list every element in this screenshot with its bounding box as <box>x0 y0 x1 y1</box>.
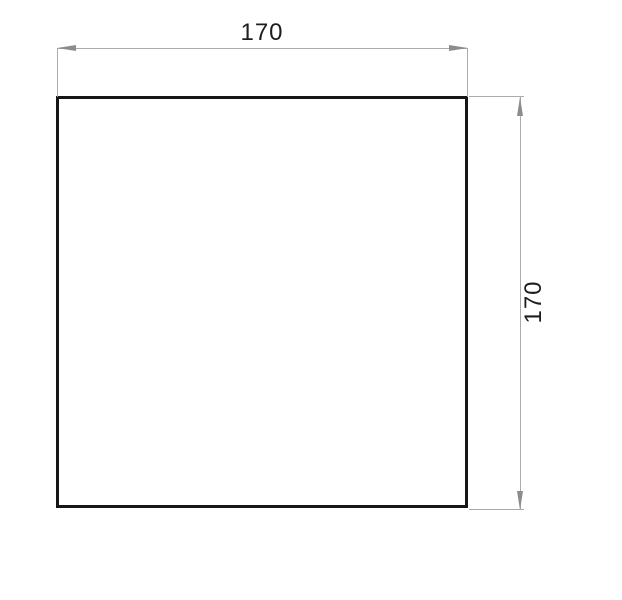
up-arrowhead-icon <box>517 97 523 116</box>
square-outline <box>56 96 468 508</box>
right-extension-line-bottom <box>469 509 524 510</box>
top-extension-line-right <box>467 48 468 97</box>
left-arrowhead-icon <box>57 45 76 51</box>
down-arrowhead-icon <box>517 491 523 510</box>
right-arrowhead-icon <box>449 45 468 51</box>
right-dimension-label: 170 <box>520 252 548 352</box>
drawing-canvas: 170 170 <box>0 0 622 600</box>
top-dimension-label: 170 <box>212 19 312 47</box>
top-extension-line-left <box>57 48 58 97</box>
right-extension-line-top <box>469 96 524 97</box>
top-dimension-line <box>57 48 468 49</box>
